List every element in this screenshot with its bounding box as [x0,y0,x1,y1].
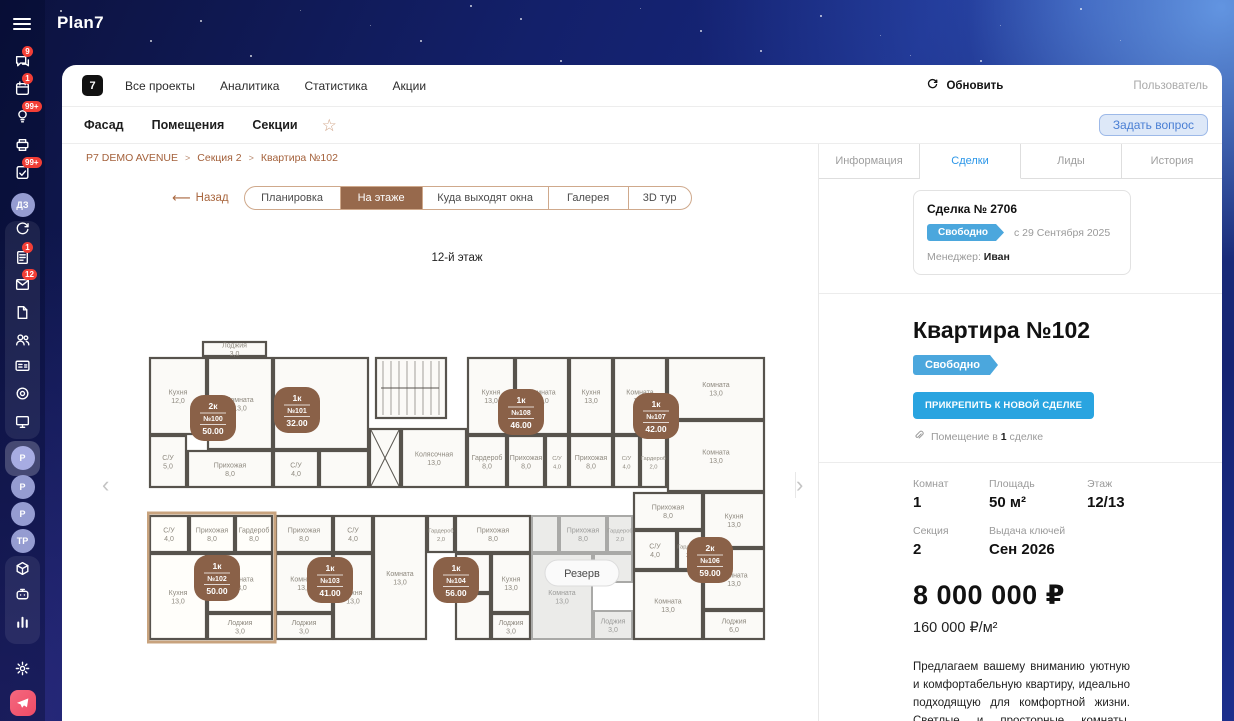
sidebar-target-icon[interactable] [0,385,45,402]
apartment-badge-№100[interactable]: 2к№10050.00 [190,395,236,441]
svg-text:Прихожая: Прихожая [510,455,543,462]
stairs[interactable] [376,358,446,418]
svg-text:Комната: Комната [702,450,730,457]
svg-text:Колясочная: Колясочная [415,452,453,459]
room-С/У[interactable]: С/У4,0 [546,436,568,487]
room-Комната[interactable]: Комната13,0 [634,571,702,639]
svg-text:2,0: 2,0 [437,537,445,543]
apartment-status-badge: Свободно [913,355,998,375]
svg-text:8,0: 8,0 [225,471,235,478]
plan-tab-куда-выходят-окна[interactable]: Куда выходят окна [423,187,549,209]
notification-badge: 1 [22,242,33,253]
svg-text:№107: №107 [646,413,666,421]
sidebar-avatar-P[interactable]: P [0,502,45,526]
refresh-button[interactable]: Обновить [926,78,1003,94]
apartment-badge-№101[interactable]: 1к№10132.00 [274,387,320,433]
svg-text:3,0: 3,0 [235,629,245,636]
svg-text:4,0: 4,0 [348,536,358,543]
sidebar-avatar-P[interactable]: P [0,475,45,499]
svg-text:С/У: С/У [622,456,632,462]
svg-text:Гардероб: Гардероб [607,529,633,535]
apartment-badge-№108[interactable]: 1к№10846.00 [498,389,544,435]
detail-выдача-ключей: Выдача ключейСен 2026 [989,525,1087,558]
panel-tab-история[interactable]: История [1122,144,1222,179]
room-С/У[interactable]: С/У5,0 [150,436,186,487]
svg-text:13,0: 13,0 [709,391,723,398]
room-Кухня[interactable]: Кухня13,0 [570,358,612,434]
room-Прихожая[interactable]: Прихожая8,0 [560,516,606,552]
svg-text:Прихожая: Прихожая [652,505,685,512]
svg-text:2,0: 2,0 [649,465,657,471]
elevator[interactable] [370,429,400,487]
svg-text:6,0: 6,0 [729,627,739,634]
deal-status-badge: Свободно [927,224,1004,241]
details-panel: ИнформацияСделкиЛидыИстория Сделка № 270… [818,144,1222,721]
refresh-label: Обновить [946,80,1003,92]
svg-text:56.00: 56.00 [445,588,467,598]
sidebar-bot-icon[interactable] [0,586,45,603]
svg-text:Гардероб: Гардероб [428,529,454,535]
floor-title: 12-й этаж [147,252,767,264]
room-Прихожая[interactable]: Прихожая8,0 [634,493,702,529]
svg-text:Прихожая: Прихожая [288,528,321,535]
svg-text:С/У: С/У [347,528,359,535]
sidebar-avatar-ДЗ[interactable]: ДЗ [0,193,45,217]
svg-text:8,0: 8,0 [249,536,259,543]
back-label: Назад [196,192,229,204]
manager-name: Иван [984,251,1010,263]
svg-text:13,0: 13,0 [661,607,675,614]
svg-text:Кухня: Кухня [169,590,188,597]
room-Кухня[interactable]: Кухня13,0 [492,554,530,612]
main-window: 7 Все проектыАналитикаСтатистикаАкции Об… [62,65,1222,721]
notification-badge: 9 [22,46,33,57]
room-hall[interactable] [320,451,368,487]
svg-text:Резерв: Резерв [564,568,600,580]
svg-text:Прихожая: Прихожая [214,463,247,470]
sidebar-news-icon[interactable]: 1 [0,249,45,266]
svg-text:12,0: 12,0 [171,398,185,405]
svg-text:13,0: 13,0 [427,460,441,467]
svg-text:№108: №108 [511,409,531,417]
svg-text:Гардероб: Гардероб [641,456,667,462]
room-С/У[interactable]: С/У4,0 [334,516,372,552]
sidebar-calendar-icon[interactable]: 1 [0,80,45,97]
svg-text:Гардероб: Гардероб [472,454,503,462]
svg-text:13,0: 13,0 [393,580,407,587]
sidebar-gear-icon[interactable] [0,660,45,677]
apartment-badge-№104[interactable]: 1к№10456.00 [433,557,479,603]
svg-text:Кухня: Кухня [582,390,601,397]
svg-text:13,0: 13,0 [727,522,741,529]
svg-text:Кухня: Кухня [169,390,188,397]
svg-text:13,0: 13,0 [727,581,741,588]
price-per-m2: 160 000 ₽/м² [913,620,1130,636]
breadcrumb-item[interactable]: Квартира №102 [261,152,338,164]
divider [819,462,1222,463]
room-Лоджия[interactable]: Лоджия3,0 [276,614,332,639]
svg-text:13,0: 13,0 [504,585,518,592]
refresh-icon [926,78,939,94]
top-menu-статистика[interactable]: Статистика [304,79,367,93]
breadcrumb-separator: > [185,153,190,163]
notification-badge: 1 [22,73,33,84]
sidebar-avatar-ТР[interactable]: ТР [0,529,45,553]
sidebar-printer-icon[interactable] [0,136,45,153]
svg-text:13,0: 13,0 [709,458,723,465]
svg-text:3,0: 3,0 [506,629,516,636]
plan-tab-планировка[interactable]: Планировка [245,187,341,209]
svg-text:Лоджия: Лоджия [499,620,524,627]
room-Лоджия[interactable]: Лоджия3,0 [492,614,530,639]
sidebar-monitor-icon[interactable] [0,413,45,430]
svg-text:5,0: 5,0 [163,464,173,471]
svg-text:4,0: 4,0 [650,552,660,559]
svg-text:4,0: 4,0 [553,465,561,471]
room-Прихожая[interactable]: Прихожая8,0 [508,436,544,487]
top-menu-все-проекты[interactable]: Все проекты [125,79,195,93]
plan-toolbar: ⟵Назад ПланировкаНа этажеКуда выходят ок… [172,186,692,210]
sidebar-chat-icon[interactable]: 9 [0,53,45,70]
room-Прихожая[interactable]: Прихожая8,0 [456,516,530,552]
svg-text:С/У: С/У [163,528,175,535]
svg-text:С/У: С/У [290,463,302,470]
room-Комната[interactable]: Комната13,0 [668,358,764,419]
room-С/У[interactable]: С/У4,0 [274,451,318,487]
floorplan-drawing[interactable]: Лоджия3,0Кухня12,0Комната13,0С/У5,0Прихо… [147,340,767,645]
svg-text:Прихожая: Прихожая [196,528,229,535]
svg-text:13,0: 13,0 [346,599,360,606]
ask-question-button[interactable]: Задать вопрос [1099,114,1208,136]
deal-manager: Менеджер: Иван [927,251,1117,263]
room-Колясочная[interactable]: Колясочная13,0 [402,429,466,487]
sidebar-tasks-icon[interactable]: 99+ [0,164,45,181]
deal-title: Сделка № 2706 [927,202,1117,216]
room-С/У[interactable]: С/У4,0 [634,531,676,569]
sidebar-id-card-icon[interactable] [0,357,45,374]
svg-text:50.00: 50.00 [202,426,224,436]
svg-text:Кухня: Кухня [502,577,521,584]
room-Прихожая[interactable]: Прихожая8,0 [570,436,612,487]
notification-badge: 12 [22,269,37,280]
top-navigation: 7 Все проектыАналитикаСтатистикаАкции Об… [62,65,1222,107]
svg-text:№106: №106 [700,557,720,565]
svg-text:8,0: 8,0 [663,513,673,520]
svg-text:46.00: 46.00 [510,420,532,430]
room-Лоджия[interactable]: Лоджия6,0 [704,611,764,639]
breadcrumb: P7 DEMO AVENUE>Секция 2>Квартира №102 [86,152,338,164]
floorplan-pane: P7 DEMO AVENUE>Секция 2>Квартира №102 ⟵Н… [62,144,818,721]
sidebar-users-icon[interactable] [0,331,45,348]
panel-tab-лиды[interactable]: Лиды [1021,144,1122,179]
room-Гардероб[interactable]: Гардероб2,0 [641,436,667,487]
svg-text:Комната: Комната [548,590,576,597]
room-Гардероб[interactable]: Гардероб8,0 [468,436,506,487]
svg-text:Гардероб: Гардероб [239,527,270,535]
notification-badge: 99+ [22,101,42,112]
plan-tab-на-этаже[interactable]: На этаже [341,187,423,209]
favorite-star-icon[interactable]: ☆ [322,117,337,134]
next-floor-chevron[interactable]: › [795,472,1199,498]
room-Гардероб[interactable]: Гардероб2,0 [428,516,454,552]
svg-text:№104: №104 [446,577,466,585]
svg-text:1к: 1к [452,563,462,573]
deal-card[interactable]: Сделка № 2706 Свободно с 29 Сентября 202… [913,190,1131,275]
svg-text:С/У: С/У [649,544,661,551]
apartment-badge-№107[interactable]: 1к№10742.00 [633,393,679,439]
top-menu-аналитика[interactable]: Аналитика [220,79,279,93]
room-Лоджия[interactable]: Лоджия3,0 [208,614,272,639]
svg-text:Прихожая: Прихожая [567,528,600,535]
content-area: P7 DEMO AVENUE>Секция 2>Квартира №102 ⟵Н… [62,144,1222,721]
sidebar-sync-icon[interactable] [0,221,45,238]
svg-text:2к: 2к [706,543,716,553]
svg-text:13,0: 13,0 [555,599,569,606]
svg-text:8,0: 8,0 [586,464,596,471]
back-link[interactable]: ⟵Назад [172,190,229,206]
detail-секция: Секция2 [913,525,989,558]
svg-text:13,0: 13,0 [584,398,598,405]
sidebar-telegram-icon[interactable] [0,690,45,716]
svg-text:3,0: 3,0 [608,627,618,634]
sidebar-chart-icon[interactable] [0,613,45,630]
svg-text:4,0: 4,0 [164,536,174,543]
svg-text:8,0: 8,0 [488,536,498,543]
svg-text:4,0: 4,0 [622,465,630,471]
panel-tab-информация[interactable]: Информация [819,144,920,179]
svg-text:Лоджия: Лоджия [228,620,253,627]
room-Прихожая[interactable]: Прихожая8,0 [276,516,332,552]
svg-text:8,0: 8,0 [207,536,217,543]
divider [819,293,1222,294]
svg-text:42.00: 42.00 [645,424,667,434]
svg-text:№102: №102 [207,575,227,583]
svg-text:13,0: 13,0 [484,398,498,405]
svg-text:Лоджия: Лоджия [292,620,317,627]
price-total: 8 000 000 ₽ [913,580,1130,611]
svg-text:Кухня: Кухня [482,390,501,397]
room-Лоджия[interactable]: Лоджия3,0 [203,342,266,358]
room-Гардероб[interactable]: Гардероб2,0 [607,516,633,552]
app-title: Plan7 [57,13,104,33]
back-arrow-icon: ⟵ [172,190,191,206]
apartment-badge-№103[interactable]: 1к№10341.00 [307,557,353,603]
room-hall[interactable] [532,516,558,552]
svg-text:50.00: 50.00 [206,586,228,596]
svg-text:Прихожая: Прихожая [477,528,510,535]
deal-count-note[interactable]: Помещение в 1 сделке [913,429,1130,444]
room-Комната[interactable]: Комната13,0 [668,421,764,491]
svg-text:№101: №101 [287,407,307,415]
sidebar-mail-icon[interactable]: 12 [0,276,45,293]
svg-text:8,0: 8,0 [521,464,531,471]
svg-text:2к: 2к [209,401,219,411]
plan-tab-3d-тур[interactable]: 3D тур [629,187,691,209]
svg-text:32.00: 32.00 [286,418,308,428]
notification-badge: 99+ [22,157,42,168]
reserve-badge: Резерв [545,560,619,586]
svg-text:1к: 1к [517,395,527,405]
app-logo[interactable]: 7 [82,75,103,96]
svg-text:8,0: 8,0 [299,536,309,543]
svg-text:1к: 1к [326,563,336,573]
svg-text:Комната: Комната [386,571,414,578]
svg-text:8,0: 8,0 [578,536,588,543]
attach-to-deal-button[interactable]: ПРИКРЕПИТЬ К НОВОЙ СДЕЛКЕ [913,392,1094,419]
room-С/У[interactable]: С/У4,0 [614,436,639,487]
svg-text:Кухня: Кухня [725,514,744,521]
svg-text:1к: 1к [652,399,662,409]
svg-text:С/У: С/У [162,455,174,462]
svg-text:Лоджия: Лоджия [722,619,747,626]
sidebar-idea-icon[interactable]: 99+ [0,108,45,125]
svg-text:1к: 1к [293,393,303,403]
sub-tab-фасад[interactable]: Фасад [84,118,124,132]
svg-text:№100: №100 [203,415,223,423]
svg-text:59.00: 59.00 [699,568,721,578]
svg-text:8,0: 8,0 [482,464,492,471]
apartment-badge-№106[interactable]: 2к№10659.00 [687,537,733,583]
details-panel-content: Сделка № 2706 Свободно с 29 Сентября 202… [819,179,1222,721]
svg-text:Лоджия: Лоджия [222,343,247,350]
svg-text:4,0: 4,0 [291,471,301,478]
sub-navigation: ФасадПомещенияСекции ☆ Задать вопрос [62,107,1222,144]
breadcrumb-item[interactable]: P7 DEMO AVENUE [86,152,178,164]
svg-text:№103: №103 [320,577,340,585]
room-Лоджия[interactable]: Лоджия3,0 [594,611,632,639]
user-menu[interactable]: Пользователь [1133,80,1208,92]
svg-text:Комната: Комната [654,599,682,606]
room-Гардероб[interactable]: Гардероб8,0 [236,516,272,552]
hamburger-menu-icon[interactable] [13,15,31,33]
sidebar-avatar-P[interactable]: P [0,446,45,470]
room-С/У[interactable]: С/У4,0 [150,516,188,552]
sidebar: 9199+99+ДЗ112PPPТР [0,0,45,721]
paperclip-icon [913,429,925,444]
svg-text:Комната: Комната [702,382,730,389]
room-Прихожая[interactable]: Прихожая8,0 [188,451,272,487]
sub-tab-секции[interactable]: Секции [252,118,297,132]
sidebar-cube-icon[interactable] [0,560,45,577]
svg-text:2,0: 2,0 [616,537,624,543]
svg-text:41.00: 41.00 [319,588,341,598]
apartment-title: Квартира №102 [913,317,1130,344]
svg-text:1к: 1к [213,561,223,571]
plan-tab-галерея[interactable]: Галерея [549,187,629,209]
deal-date: с 29 Сентября 2025 [1014,227,1110,239]
svg-text:13,0: 13,0 [171,599,185,606]
svg-text:С/У: С/У [552,456,562,462]
room-Прихожая[interactable]: Прихожая8,0 [190,516,234,552]
svg-text:Прихожая: Прихожая [575,455,608,462]
svg-text:Лоджия: Лоджия [601,619,626,626]
sidebar-document-icon[interactable] [0,304,45,321]
apartment-badge-№102[interactable]: 1к№10250.00 [194,555,240,601]
logo-text: 7 [89,80,95,92]
sub-tab-помещения[interactable]: Помещения [152,118,225,132]
top-menu-акции[interactable]: Акции [392,79,426,93]
breadcrumb-item[interactable]: Секция 2 [197,152,241,164]
apartment-description: Предлагаем вашему вниманию уютную и комф… [913,658,1130,721]
panel-tab-сделки[interactable]: Сделки [920,144,1021,179]
room-Комната[interactable]: Комната13,0 [374,516,426,639]
breadcrumb-separator: > [249,153,254,163]
svg-text:3,0: 3,0 [299,629,309,636]
